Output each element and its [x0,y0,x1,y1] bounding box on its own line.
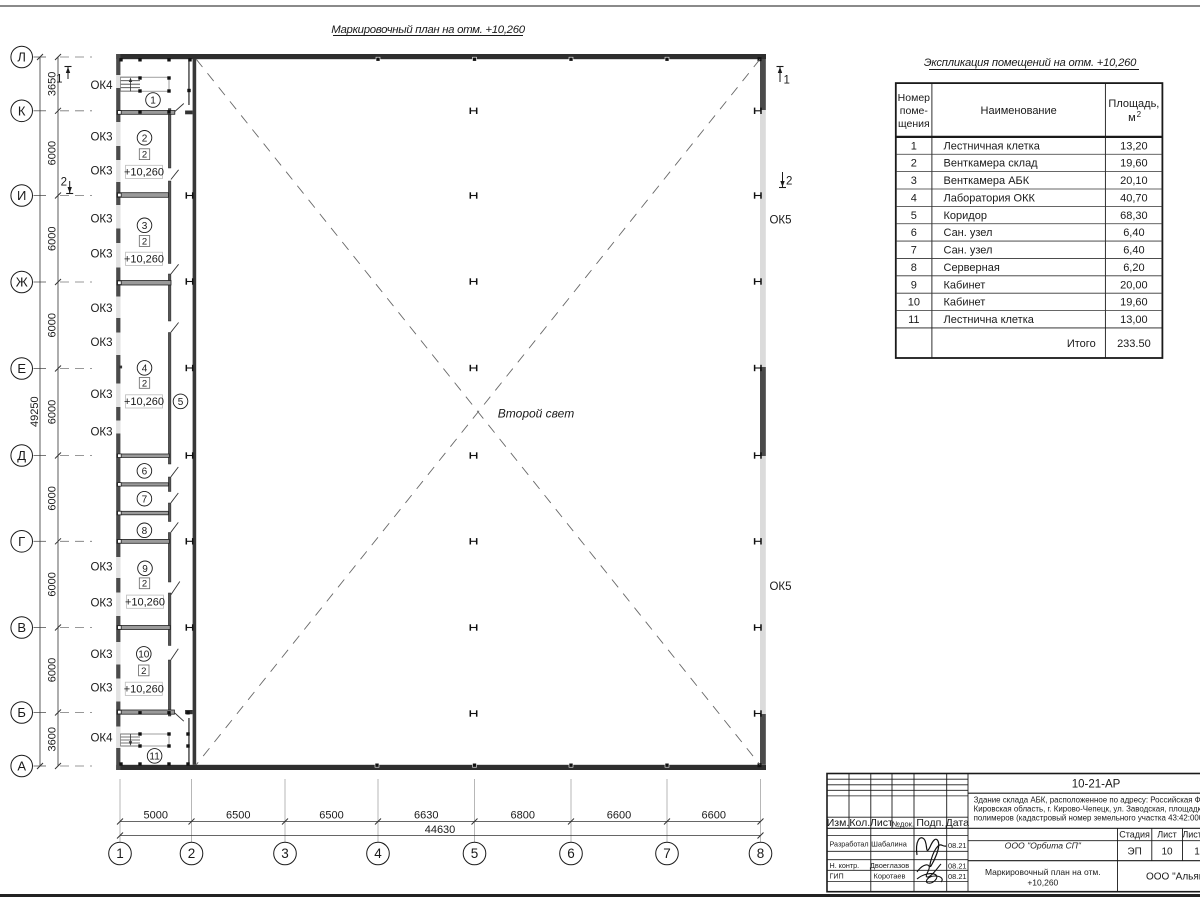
svg-text:08.21: 08.21 [948,862,967,871]
svg-text:Дата: Дата [946,817,969,829]
svg-text:2: 2 [1137,110,1142,119]
svg-text:3600: 3600 [47,727,59,751]
svg-text:6500: 6500 [319,810,343,822]
svg-text:ООО "Альянс: ООО "Альянс [1146,872,1200,883]
svg-text:5: 5 [471,846,479,861]
svg-text:10-21-АР: 10-21-АР [1072,779,1121,791]
svg-text:Д: Д [17,448,26,463]
svg-text:6: 6 [567,846,575,861]
svg-text:10: 10 [908,297,920,309]
svg-text:1: 1 [1194,847,1200,858]
svg-text:Маркировочный план на отм.: Маркировочный план на отм. [985,867,1101,877]
svg-text:Подп.: Подп. [916,817,944,829]
svg-text:13,20: 13,20 [1120,140,1148,152]
svg-text:19,60: 19,60 [1120,297,1148,309]
svg-text:2: 2 [142,236,147,247]
svg-text:А: А [17,759,26,774]
svg-text:Кабинет: Кабинет [944,297,986,309]
svg-text:08.21: 08.21 [948,872,967,881]
svg-text:68,30: 68,30 [1120,210,1148,222]
svg-text:поме-: поме- [900,105,929,117]
svg-text:19,60: 19,60 [1120,158,1148,170]
svg-text:6600: 6600 [607,810,631,822]
svg-text:Здание склада АБК, расположенн: Здание склада АБК, расположенное по адре… [974,795,1200,804]
svg-text:Кировская область, г. Кирово-Ч: Кировская область, г. Кирово-Чепецк, ул.… [974,805,1200,814]
svg-text:6,40: 6,40 [1123,245,1144,257]
svg-text:Лист: Лист [870,817,893,829]
svg-text:Г: Г [18,534,25,549]
svg-text:1: 1 [150,96,156,107]
svg-text:Второй свет: Второй свет [498,407,574,421]
svg-text:ОК3: ОК3 [90,597,112,609]
svg-text:1: 1 [56,74,62,86]
svg-text:7: 7 [142,494,148,505]
svg-text:2: 2 [188,846,196,861]
svg-text:Кабинет: Кабинет [944,279,986,291]
svg-text:1: 1 [116,846,124,861]
svg-text:Площадь,: Площадь, [1108,98,1159,110]
svg-text:К: К [18,103,26,118]
svg-text:полимеров (кадастровый номер з: полимеров (кадастровый номер земельного … [974,814,1200,823]
svg-text:В: В [17,620,26,635]
svg-text:08.21: 08.21 [948,841,967,850]
svg-text:Н. контр.: Н. контр. [830,861,860,870]
svg-text:Серверная: Серверная [944,262,1000,274]
svg-text:Лаборатория ОКК: Лаборатория ОКК [944,192,1036,204]
svg-text:ОК4: ОК4 [90,80,113,92]
svg-text:49250: 49250 [29,396,41,427]
svg-text:ОК3: ОК3 [90,427,112,439]
svg-text:Маркировочный план на отм. +10: Маркировочный план на отм. +10,260 [331,24,526,36]
svg-text:ОК5: ОК5 [769,581,791,593]
svg-text:Лестничная клетка: Лестничная клетка [944,140,1041,152]
svg-text:щения: щения [898,118,930,130]
svg-text:40,70: 40,70 [1120,192,1148,204]
svg-text:4: 4 [911,192,917,204]
svg-text:2: 2 [141,666,146,677]
svg-text:м: м [1128,112,1136,124]
svg-text:Сан. узел: Сан. узел [944,245,993,257]
svg-text:6,40: 6,40 [1123,227,1144,239]
svg-text:6000: 6000 [47,141,59,165]
svg-text:20,10: 20,10 [1120,175,1148,187]
svg-text:6500: 6500 [226,810,250,822]
svg-text:11: 11 [908,314,919,326]
svg-text:233.50: 233.50 [1117,338,1151,350]
svg-text:8: 8 [757,846,765,861]
svg-text:ЭП: ЭП [1127,847,1141,858]
svg-text:+10,260: +10,260 [124,396,164,408]
svg-text:Листов: Листов [1182,830,1200,840]
svg-text:ОК3: ОК3 [90,214,112,226]
svg-text:20,00: 20,00 [1120,279,1148,291]
svg-text:И: И [17,188,26,203]
svg-text:6800: 6800 [511,810,535,822]
svg-text:9: 9 [142,564,148,575]
svg-text:ОК3: ОК3 [90,132,112,144]
svg-text:13,00: 13,00 [1120,314,1148,326]
svg-text:Экспликация помещений на отм.: Экспликация помещений на отм. +10,260 [924,57,1137,69]
svg-text:Л: Л [17,50,26,65]
svg-text:Шабалина: Шабалина [871,840,908,849]
svg-text:6000: 6000 [47,313,59,337]
svg-text:ОК5: ОК5 [769,215,791,227]
svg-text:6000: 6000 [47,658,59,682]
svg-text:Двоеглазов: Двоеглазов [870,861,909,870]
svg-text:ОК3: ОК3 [90,166,112,178]
svg-text:3: 3 [911,175,917,187]
svg-text:3: 3 [142,221,148,232]
svg-text:Наименование: Наименование [981,105,1057,117]
svg-text:11: 11 [149,752,160,763]
svg-text:Разработал: Разработал [830,840,869,849]
svg-text:6: 6 [142,467,148,478]
svg-text:Коротаев: Коротаев [874,872,906,881]
svg-text:5000: 5000 [144,810,168,822]
svg-text:6000: 6000 [47,486,59,510]
svg-text:6000: 6000 [47,400,59,424]
svg-text:4: 4 [142,364,148,375]
svg-text:Лист: Лист [1157,830,1177,840]
svg-text:2: 2 [142,579,147,590]
svg-text:9: 9 [911,279,917,291]
svg-text:Сан. узел: Сан. узел [944,227,993,239]
svg-text:2: 2 [786,176,792,188]
svg-text:5: 5 [911,210,917,222]
svg-text:7: 7 [911,245,917,257]
svg-text:Венткамера склад: Венткамера склад [944,158,1039,170]
svg-text:1: 1 [784,75,790,87]
svg-text:ГИП: ГИП [830,872,844,881]
svg-text:Ж: Ж [16,275,28,290]
svg-text:ОК3: ОК3 [90,389,112,401]
svg-text:6: 6 [911,227,917,239]
svg-text:+10,260: +10,260 [125,597,165,609]
svg-text:6000: 6000 [47,572,59,596]
svg-text:Е: Е [17,361,26,376]
svg-text:Номер: Номер [898,92,930,104]
svg-text:10: 10 [1161,847,1173,858]
svg-text:Стадия: Стадия [1119,830,1150,840]
svg-text:4: 4 [374,846,382,861]
svg-text:+10,260: +10,260 [1027,877,1058,887]
svg-text:+10,260: +10,260 [124,254,164,266]
svg-text:Коридор: Коридор [944,210,987,222]
svg-text:2: 2 [911,158,917,170]
svg-text:Лестнична клетка: Лестнична клетка [944,314,1035,326]
svg-text:Венткамера АБК: Венткамера АБК [944,175,1030,187]
svg-text:6600: 6600 [702,810,726,822]
svg-text:2: 2 [61,177,67,189]
svg-text:Б: Б [17,705,26,720]
svg-text:ОК3: ОК3 [90,562,112,574]
svg-text:Кол.: Кол. [849,817,870,829]
svg-text:1: 1 [911,140,917,152]
svg-text:10: 10 [138,650,150,661]
svg-text:6630: 6630 [414,810,438,822]
svg-text:6000: 6000 [47,227,59,251]
svg-text:2: 2 [142,133,148,144]
svg-text:2: 2 [142,150,147,161]
svg-text:ОК3: ОК3 [90,649,112,661]
svg-text:8: 8 [911,262,917,274]
svg-text:7: 7 [663,846,671,861]
svg-text:Итого: Итого [1067,338,1096,350]
svg-text:ОК4: ОК4 [90,733,113,745]
svg-text:ООО "Орбита СП": ООО "Орбита СП" [1005,841,1082,851]
svg-text:ОК3: ОК3 [90,337,112,349]
svg-text:Изм.: Изм. [827,817,850,829]
svg-text:ОК3: ОК3 [90,303,112,315]
svg-text:2: 2 [142,378,147,389]
svg-text:6,20: 6,20 [1123,262,1144,274]
svg-text:+10,260: +10,260 [124,684,164,696]
svg-text:+10,260: +10,260 [124,167,164,179]
svg-text:№док.: №док. [892,819,914,828]
svg-text:44630: 44630 [425,824,456,836]
svg-text:ОК3: ОК3 [90,683,112,695]
svg-text:8: 8 [142,526,148,537]
svg-text:ОК3: ОК3 [90,249,112,261]
svg-text:5: 5 [178,397,184,408]
svg-text:3: 3 [281,846,289,861]
